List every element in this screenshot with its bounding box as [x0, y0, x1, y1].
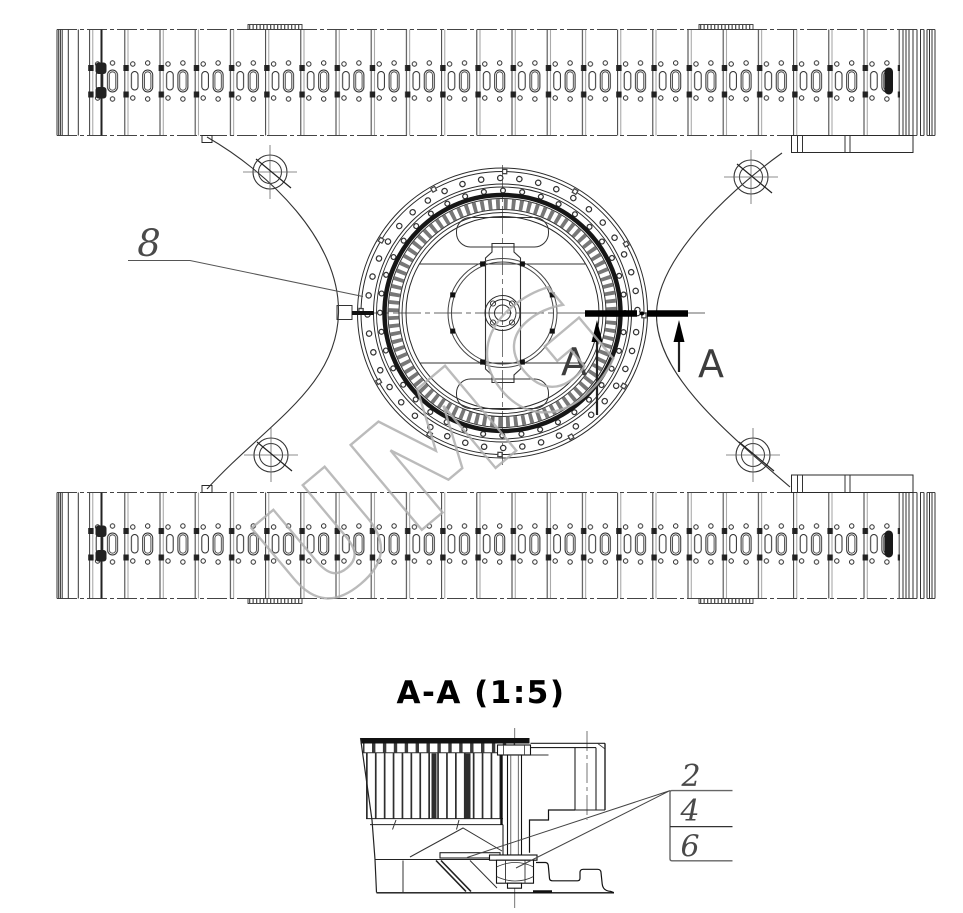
track-frame-ledge — [792, 475, 914, 493]
callout-stack: 2 4 6 — [467, 759, 733, 868]
bolt-washer-top — [498, 745, 531, 755]
track-pin-boss — [96, 550, 107, 562]
callout-6: 6 — [680, 830, 699, 865]
bolt-tip — [508, 883, 522, 888]
bottom-track-left-end — [57, 493, 78, 599]
frame-profile — [530, 743, 614, 892]
callout-2: 2 — [680, 759, 700, 794]
frame-right-edge — [656, 153, 790, 487]
callout-8-number: 8 — [137, 222, 161, 265]
callout-8: 8 — [128, 222, 363, 297]
gear-section — [361, 738, 615, 893]
track-pin-boss — [96, 63, 107, 75]
section-letter-right: A — [698, 342, 724, 386]
grease-fitting — [337, 306, 352, 320]
top-track-left-end — [57, 30, 78, 136]
section-arrow-right — [674, 320, 685, 342]
callout-4: 4 — [679, 794, 699, 829]
bottom-track-right-end — [903, 493, 935, 599]
callout-8-leader — [128, 261, 363, 297]
nut — [497, 860, 534, 883]
frame-boss-top-left — [243, 145, 297, 199]
bolt-assembly — [440, 745, 537, 888]
lower-rail-profile — [536, 863, 614, 893]
track-pin-boss — [96, 87, 107, 99]
nut-washer — [490, 855, 538, 860]
technical-drawing-svg: A A 8 UMG A-A (1:5) — [0, 0, 963, 913]
top-track-shoes — [88, 30, 900, 136]
track-pin-boss — [96, 526, 107, 538]
crawler-undercarriage-drawing: A A 8 UMG A-A (1:5) — [0, 0, 963, 913]
callout-stack-frame — [670, 791, 733, 861]
section-view-title: A-A (1:5) — [396, 675, 565, 711]
top-track — [57, 25, 935, 153]
frame-boss-top-right — [724, 150, 778, 204]
top-track-right-end — [903, 30, 935, 136]
frame-boss-bottom-right — [726, 428, 780, 482]
track-frame-ledge — [792, 136, 914, 153]
track-master-link — [885, 68, 894, 95]
section-view: A-A (1:5) — [361, 675, 615, 908]
track-master-link — [885, 531, 894, 558]
